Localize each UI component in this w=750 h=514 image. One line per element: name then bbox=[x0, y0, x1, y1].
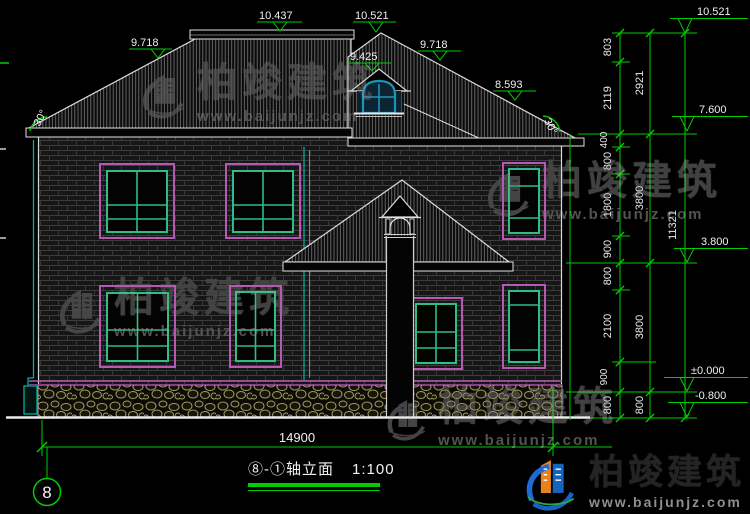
foundation-stonework bbox=[38, 385, 562, 417]
dim-label: 2921 bbox=[634, 71, 646, 95]
dim-label: 2100 bbox=[602, 314, 614, 338]
elevation-label: 7.600 bbox=[699, 104, 727, 116]
cad-elevation-drawing: 9.718 10.437 10.521 9.425 9.718 8.593 bbox=[0, 0, 750, 514]
axis-bubble-label: 8 bbox=[42, 483, 51, 502]
dim-label: 3800 bbox=[634, 186, 646, 210]
window-2f-left bbox=[100, 164, 174, 238]
window-2f-mid bbox=[226, 164, 300, 238]
elevation-marker: 10.521 bbox=[353, 10, 396, 32]
elevation-label: 10.437 bbox=[259, 10, 293, 22]
elevation-label: 9.425 bbox=[350, 51, 378, 63]
dim-label: 400 bbox=[599, 131, 610, 148]
title-underline-thin bbox=[248, 490, 380, 491]
elevation-label: -0.800 bbox=[695, 390, 726, 402]
brand-name: 柏竣建筑 bbox=[589, 455, 745, 490]
elevation-canvas: 9.718 10.437 10.521 9.425 9.718 8.593 bbox=[0, 0, 750, 514]
elevation-label: ±0.000 bbox=[691, 365, 725, 377]
dim-label-total-height: 11321 bbox=[667, 210, 679, 240]
dim-label: 2119 bbox=[602, 86, 614, 110]
elevation-label: 10.521 bbox=[697, 6, 731, 18]
dim-label: 800 bbox=[602, 267, 614, 285]
dim-label: 900 bbox=[602, 240, 614, 258]
brand-url: www.baijunjz.com bbox=[589, 494, 745, 510]
elevation-marker: -0.800 bbox=[668, 390, 748, 417]
brand-text-block: 柏竣建筑 www.baijunjz.com bbox=[589, 455, 745, 510]
downspout-left bbox=[24, 140, 37, 414]
overall-width-label: 14900 bbox=[279, 430, 315, 445]
dimension-labels-inner: 803 2119 400 800 1800 900 800 2100 900 8… bbox=[599, 38, 614, 414]
axis-bubble-8: 8 bbox=[34, 447, 61, 506]
eave-fascia-left bbox=[26, 128, 352, 137]
elevation-marker: 10.437 bbox=[257, 10, 302, 31]
elevation-label: 9.718 bbox=[131, 37, 159, 49]
brand-logo-block: 柏竣建筑 www.baijunjz.com bbox=[519, 451, 745, 513]
elevation-label: 3.800 bbox=[701, 236, 729, 248]
window-1f-entry-side bbox=[410, 298, 462, 369]
window-2f-right-narrow bbox=[503, 163, 545, 239]
brand-logo-icon bbox=[519, 451, 581, 513]
drawing-title-block: ⑧-①轴立面1:100 bbox=[248, 458, 395, 491]
drawing-scale: 1:100 bbox=[352, 461, 395, 478]
drawing-title: ⑧-①轴立面 bbox=[248, 461, 334, 478]
left-roof bbox=[27, 30, 354, 129]
title-underline bbox=[248, 483, 380, 487]
elevation-marker: 7.600 bbox=[672, 104, 748, 131]
dimension-labels-middle: 2921 3800 3800 800 bbox=[634, 71, 646, 414]
elevation-label: 9.718 bbox=[420, 39, 448, 51]
window-1f-mid bbox=[230, 286, 281, 367]
dim-label: 800 bbox=[602, 396, 614, 414]
dim-label: 800 bbox=[602, 152, 614, 170]
dim-label: 800 bbox=[634, 396, 646, 414]
window-1f-left bbox=[100, 286, 175, 367]
eave-fascia-right bbox=[348, 138, 584, 146]
elevation-marker: ±0.000 bbox=[664, 365, 748, 391]
dim-label: 1800 bbox=[602, 193, 614, 217]
elevation-label: 10.521 bbox=[355, 10, 389, 22]
dim-label: 3800 bbox=[634, 315, 646, 339]
elevation-marker: 10.521 bbox=[670, 6, 748, 33]
dim-label: 803 bbox=[602, 38, 614, 56]
elevation-label: 8.593 bbox=[495, 79, 523, 91]
window-1f-right-narrow bbox=[503, 285, 545, 368]
edge-tick-marks bbox=[0, 63, 9, 238]
dim-label: 900 bbox=[599, 368, 610, 385]
